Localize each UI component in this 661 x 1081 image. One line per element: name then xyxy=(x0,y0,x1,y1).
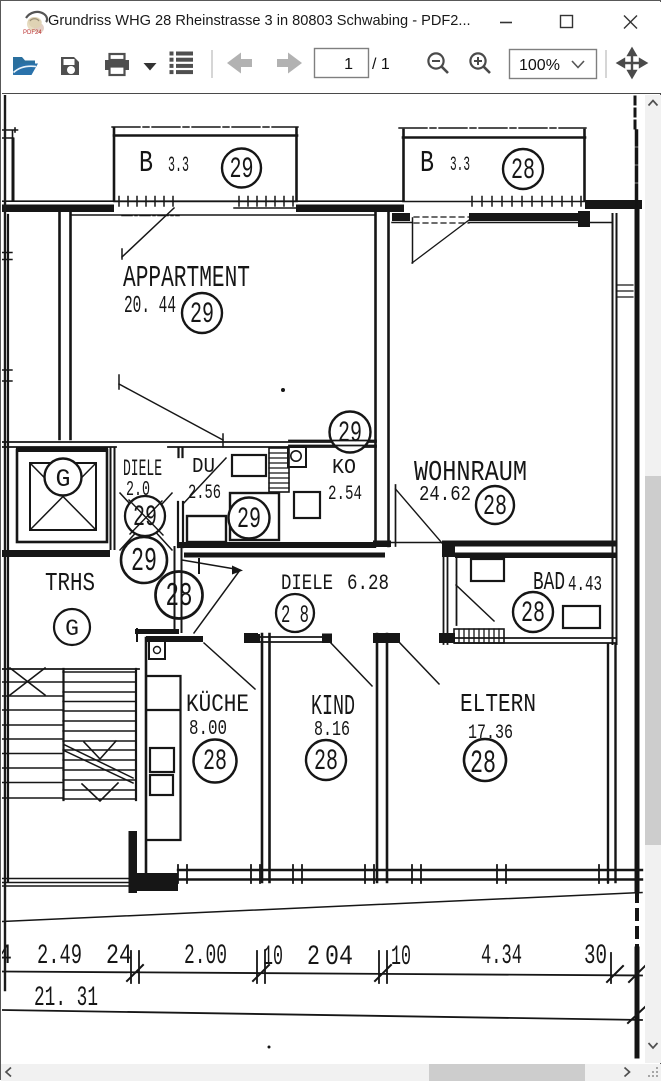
svg-text:28: 28 xyxy=(511,154,535,188)
svg-text:2.00: 2.00 xyxy=(184,941,227,972)
svg-text:24.62: 24.62 xyxy=(419,484,471,507)
svg-text:DIELE: DIELE xyxy=(281,571,333,596)
svg-text:KÜCHE: KÜCHE xyxy=(186,690,249,719)
svg-text:4: 4 xyxy=(2,941,12,972)
svg-text:8.00: 8.00 xyxy=(189,718,227,741)
svg-text:04: 04 xyxy=(325,942,353,973)
svg-text:4.43: 4.43 xyxy=(568,574,602,597)
svg-text:G: G xyxy=(55,465,70,494)
svg-text:KO: KO xyxy=(332,457,356,480)
svg-text:2 8: 2 8 xyxy=(281,601,309,630)
svg-text:G: G xyxy=(65,616,79,642)
svg-text:B: B xyxy=(420,146,434,181)
svg-text:28: 28 xyxy=(166,578,193,615)
svg-text:29: 29 xyxy=(237,503,261,537)
svg-text:2.56: 2.56 xyxy=(188,482,221,505)
svg-text:28: 28 xyxy=(314,745,338,779)
svg-text:30: 30 xyxy=(584,941,607,972)
svg-text:10: 10 xyxy=(391,942,411,973)
svg-text:/ 1: / 1 xyxy=(372,56,390,73)
svg-text:21. 31: 21. 31 xyxy=(34,983,98,1014)
svg-text:100%: 100% xyxy=(519,57,560,74)
svg-text:PDF24: PDF24 xyxy=(23,30,42,36)
svg-text:3.3: 3.3 xyxy=(450,154,470,177)
svg-text:28: 28 xyxy=(521,597,545,631)
svg-text:TRHS: TRHS xyxy=(45,568,95,598)
svg-text:DU: DU xyxy=(192,456,215,479)
svg-text:28: 28 xyxy=(470,745,496,782)
svg-text:29: 29 xyxy=(190,298,214,332)
svg-text:6.28: 6.28 xyxy=(347,571,389,596)
svg-text:1: 1 xyxy=(344,56,353,73)
svg-text:B: B xyxy=(139,146,153,181)
svg-text:2.49: 2.49 xyxy=(37,941,82,972)
svg-text:2.54: 2.54 xyxy=(328,483,362,506)
svg-text:8.16: 8.16 xyxy=(314,719,350,742)
svg-text:29: 29 xyxy=(230,153,254,187)
svg-text:APPARTMENT: APPARTMENT xyxy=(123,261,250,296)
svg-text:4.34: 4.34 xyxy=(481,941,522,972)
svg-text:24: 24 xyxy=(106,941,132,972)
svg-text:3.3: 3.3 xyxy=(168,153,189,178)
svg-text:28: 28 xyxy=(203,745,227,779)
svg-text:20. 44: 20. 44 xyxy=(124,293,176,320)
svg-text:29: 29 xyxy=(131,543,157,580)
svg-text:28: 28 xyxy=(483,490,507,523)
svg-text:2: 2 xyxy=(307,942,320,973)
svg-text:ELTERN: ELTERN xyxy=(460,689,536,719)
